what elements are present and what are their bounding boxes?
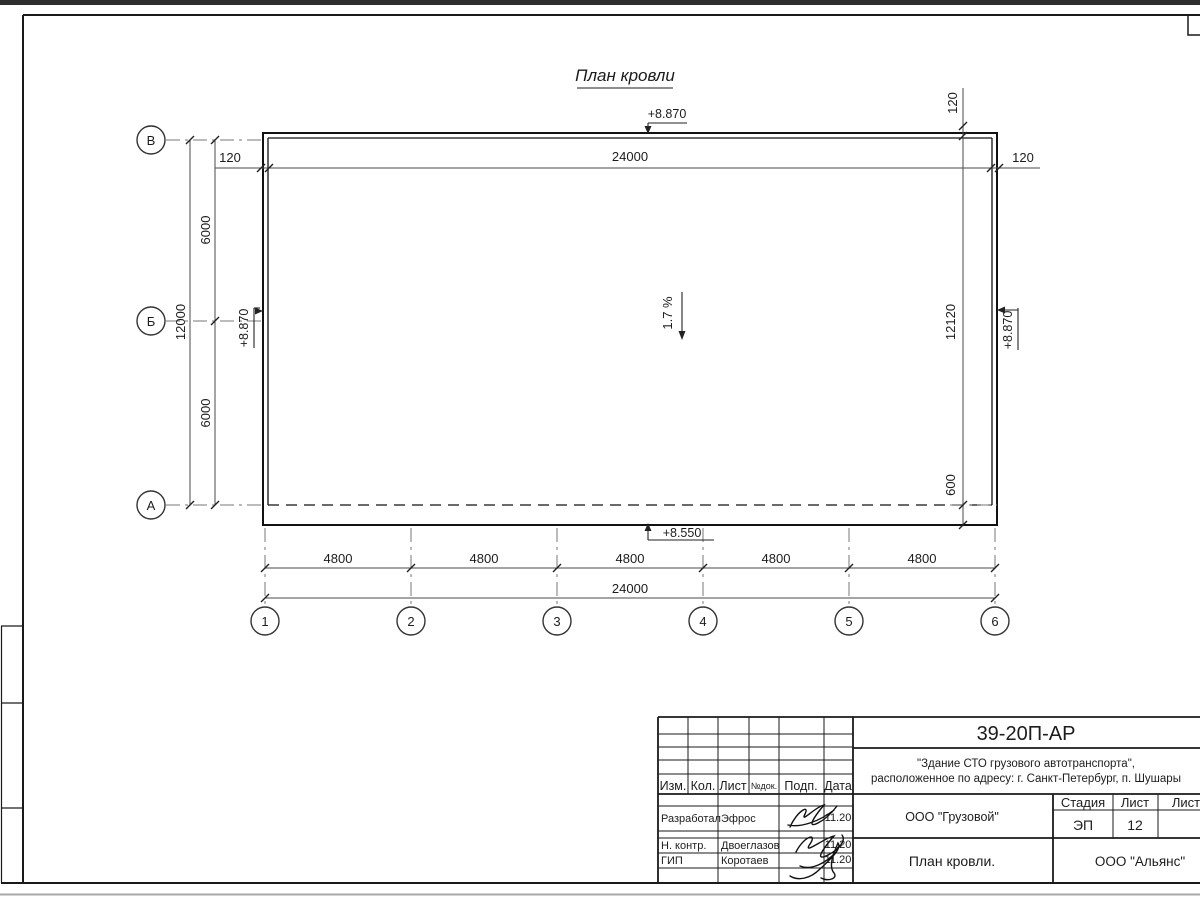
slope-annotation: 1.7 % (660, 292, 686, 340)
col-data: Дата (824, 779, 852, 793)
dim-right-overhang-top: 120 (945, 92, 960, 114)
sheet-label: Лист (1121, 795, 1149, 810)
signer-role: Разработал (661, 813, 721, 825)
axis-row-bubbles: В Б А (137, 126, 165, 519)
dim-bay: 4800 (762, 551, 791, 566)
dim-left-bay-lower: 6000 (198, 399, 213, 428)
sheet-title: План кровли. (909, 853, 995, 869)
doc-number: 39-20П-АР (977, 723, 1076, 745)
stage-value: ЭП (1073, 817, 1093, 833)
dim-left-overall: 12000 (173, 304, 188, 340)
corner-doc-box (1188, 15, 1200, 35)
elev-right: +8.870 (1001, 311, 1015, 350)
dim-top-overhang-right: 120 (1012, 150, 1034, 165)
left-margin-boxes (1, 626, 23, 883)
slope-label: 1.7 % (660, 296, 675, 330)
axis-col-label: 3 (553, 614, 560, 629)
dim-bay: 4800 (324, 551, 353, 566)
signer-name: Двоеглазов (721, 840, 780, 852)
axis-row-label: А (147, 498, 156, 513)
arrow-down-icon (679, 331, 686, 340)
drawing-sheet: План кровли В Б А 1 2 3 (0, 0, 1200, 900)
col-list: Лист (719, 779, 746, 793)
roof-plan-canvas: План кровли В Б А 1 2 3 (0, 0, 1200, 900)
dim-right-overall: 12120 (943, 304, 958, 340)
dimension-lines (190, 88, 1040, 598)
signer-name: Коротаев (721, 855, 769, 867)
elevation-marks (254, 123, 1018, 540)
col-podp: Подп. (784, 779, 817, 793)
signer-name: Эфрос (721, 813, 756, 825)
axis-col-label: 5 (845, 614, 852, 629)
axis-col-label: 1 (261, 614, 268, 629)
axis-col-label: 2 (407, 614, 414, 629)
elevation-texts: +8.870 +8.870 +8.870 +8.550 (237, 107, 1015, 540)
company-name: ООО "Альянс" (1095, 854, 1185, 869)
axis-col-label: 6 (991, 614, 998, 629)
roof-outline (263, 133, 997, 525)
sheets-label: Листов (1172, 795, 1200, 810)
elev-bottom: +8.550 (663, 526, 702, 540)
drawing-title: План кровли (575, 66, 675, 85)
elev-left: +8.870 (237, 309, 251, 348)
project-name-line1: "Здание СТО грузового автотранспорта", (917, 758, 1135, 770)
project-name-line2: расположенное по адресу: г. Санкт-Петерб… (871, 773, 1181, 785)
elev-top: +8.870 (648, 107, 687, 121)
dim-bay: 4800 (908, 551, 937, 566)
axis-row-label: В (147, 133, 156, 148)
dim-bottom-overall: 24000 (612, 581, 648, 596)
client-name: ООО "Грузовой" (905, 810, 999, 824)
sheet-frame (1, 15, 1200, 883)
dim-top-overhang-left: 120 (219, 150, 241, 165)
col-ndoc: №док. (751, 781, 777, 791)
col-kol: Кол. (691, 779, 716, 793)
signer-role: ГИП (661, 855, 683, 867)
axis-col-bubbles: 1 2 3 4 5 6 (251, 607, 1009, 635)
sheet-value: 12 (1127, 817, 1143, 833)
axis-col-label: 4 (699, 614, 706, 629)
axis-row-label: Б (147, 314, 156, 329)
axis-lines (166, 140, 997, 606)
dim-top-overall: 24000 (612, 149, 648, 164)
col-izm: Изм. (660, 779, 687, 793)
dim-bay: 4800 (616, 551, 645, 566)
signer-role: Н. контр. (661, 840, 706, 852)
title-block: Изм. Кол. Лист №док. Подп. Дата Разработ… (658, 717, 1200, 883)
dimension-ticks (186, 122, 1003, 602)
stage-label: Стадия (1061, 795, 1105, 810)
dim-left-bay-upper: 6000 (198, 216, 213, 245)
dim-right-overhang-bottom: 600 (943, 474, 958, 496)
dim-bay: 4800 (470, 551, 499, 566)
signer-row: ГИП Коротаев 11.20 (661, 854, 851, 867)
signer-row: Разработал Эфрос 11.20 (661, 812, 851, 825)
